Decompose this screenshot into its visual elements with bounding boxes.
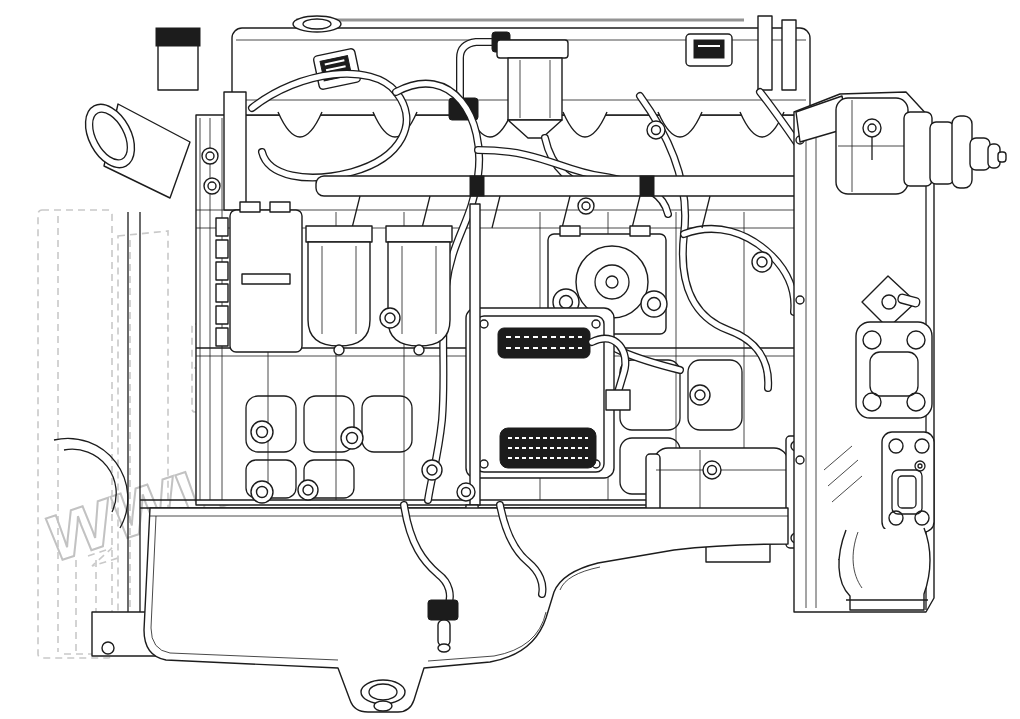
fuel-filter-2: [386, 226, 452, 355]
cover-connector-2: [686, 34, 732, 66]
ecu-connector-top: [498, 328, 590, 358]
fuel-filter-1: [306, 226, 372, 355]
engine-line-art: www.simtruck.biz: [0, 0, 1020, 719]
lower-mount-plate: [882, 432, 934, 532]
ecu-module: [466, 308, 630, 478]
exhaust-elbow: [839, 528, 930, 610]
exhaust-flange: [856, 322, 932, 418]
intake-water-horn: [75, 96, 190, 198]
engine-parts-diagram: www.simtruck.biz: [0, 0, 1020, 719]
oil-pan: [144, 508, 788, 712]
